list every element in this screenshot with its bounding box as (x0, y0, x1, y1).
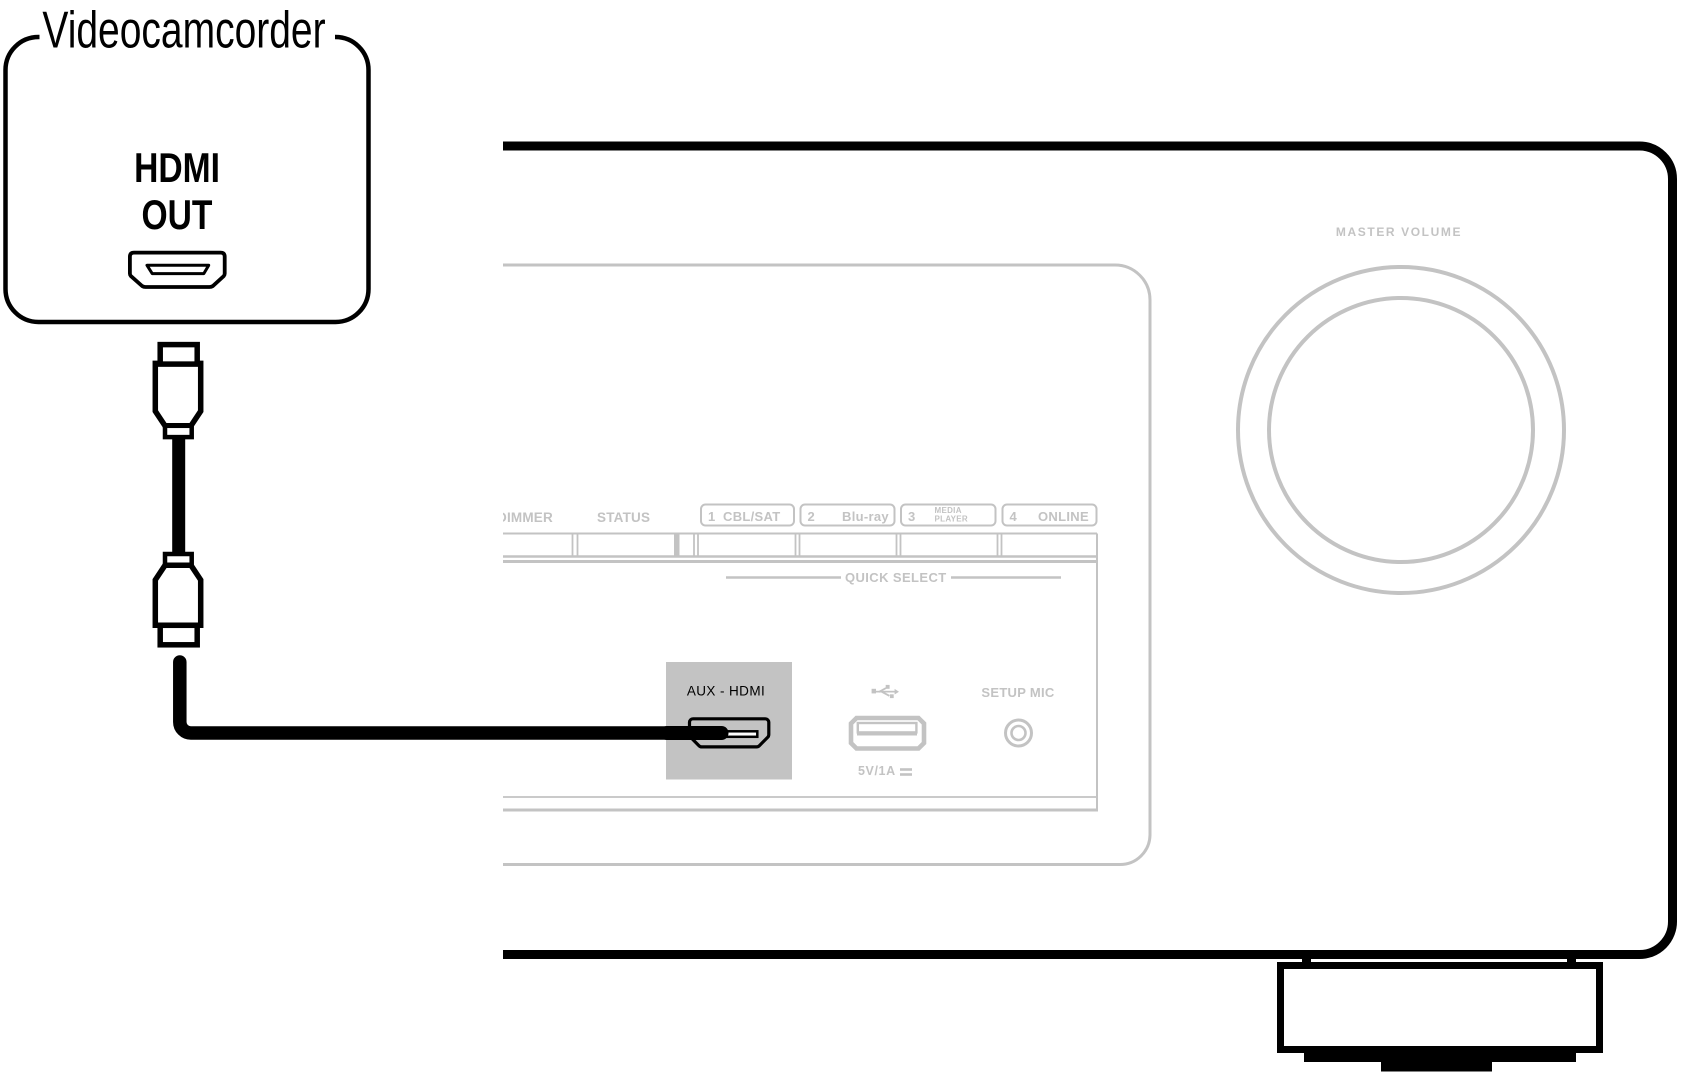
svg-text:1: 1 (708, 509, 715, 524)
svg-text:OUT: OUT (142, 193, 213, 239)
svg-text:3: 3 (908, 509, 915, 524)
svg-text:Videocamcorder: Videocamcorder (42, 0, 325, 59)
svg-text:DIMMER: DIMMER (497, 510, 553, 525)
svg-text:CBL/SAT: CBL/SAT (723, 509, 780, 524)
svg-text:PLAYER: PLAYER (935, 515, 969, 524)
svg-text:5V/1A: 5V/1A (858, 764, 896, 778)
svg-text:2: 2 (808, 509, 815, 524)
svg-text:QUICK SELECT: QUICK SELECT (845, 570, 947, 585)
svg-text:HDMI: HDMI (134, 146, 220, 192)
svg-text:Blu-ray: Blu-ray (842, 509, 889, 524)
svg-text:SETUP MIC: SETUP MIC (981, 685, 1055, 700)
svg-text:ONLINE: ONLINE (1038, 509, 1089, 524)
svg-text:4: 4 (1010, 509, 1018, 524)
svg-text:MASTER VOLUME: MASTER VOLUME (1336, 225, 1462, 239)
svg-text:STATUS: STATUS (597, 510, 650, 525)
svg-text:AUX - HDMI: AUX - HDMI (687, 684, 765, 699)
